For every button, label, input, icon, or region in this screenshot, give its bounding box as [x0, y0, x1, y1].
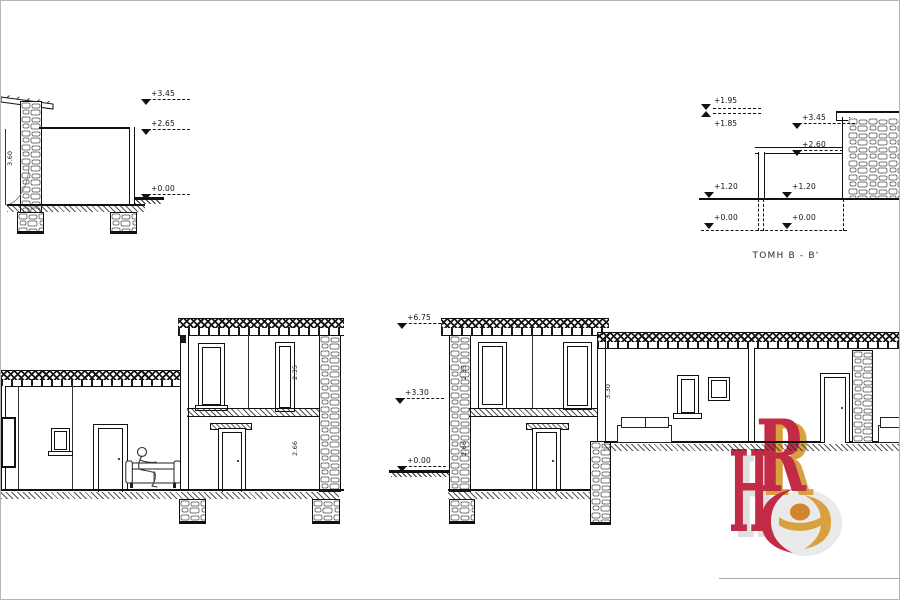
- wing-floor-hatch: [604, 444, 899, 451]
- upper-window: [478, 342, 507, 409]
- drawing-canvas: H R H R 3.60 +3.45 +2.65: [0, 0, 900, 600]
- ground-slab-hatch: [448, 492, 604, 499]
- partition-line: [532, 335, 533, 408]
- section-bottom-right: 2.35 2.66 3.30: [1, 1, 899, 599]
- foundation-footing: [449, 499, 475, 524]
- upper-window: [563, 342, 592, 410]
- window-sill: [673, 413, 702, 419]
- dimension-label: 3.30: [604, 384, 612, 399]
- small-window: [708, 377, 730, 401]
- wing-partition-wall: [748, 348, 755, 441]
- bed-pillow: [880, 417, 900, 428]
- door-knob: [841, 407, 843, 409]
- dimension-label: 2.66: [460, 441, 468, 456]
- wing-door: [820, 373, 850, 442]
- tower-stone-wall: [449, 335, 471, 492]
- floor-slab: [469, 408, 597, 417]
- floor-ground-line: [448, 489, 604, 491]
- door-knob: [552, 460, 554, 462]
- terrace-retaining-wall: [590, 441, 611, 525]
- lower-door: [532, 428, 561, 491]
- door-leaf: [824, 377, 846, 443]
- dimension-label: 2.35: [460, 365, 468, 380]
- bed-pillow: [621, 417, 646, 428]
- door-leaf: [536, 432, 557, 492]
- tall-window: [677, 375, 699, 417]
- bed-pillow: [645, 417, 669, 428]
- wing-stone-wall: [852, 350, 873, 443]
